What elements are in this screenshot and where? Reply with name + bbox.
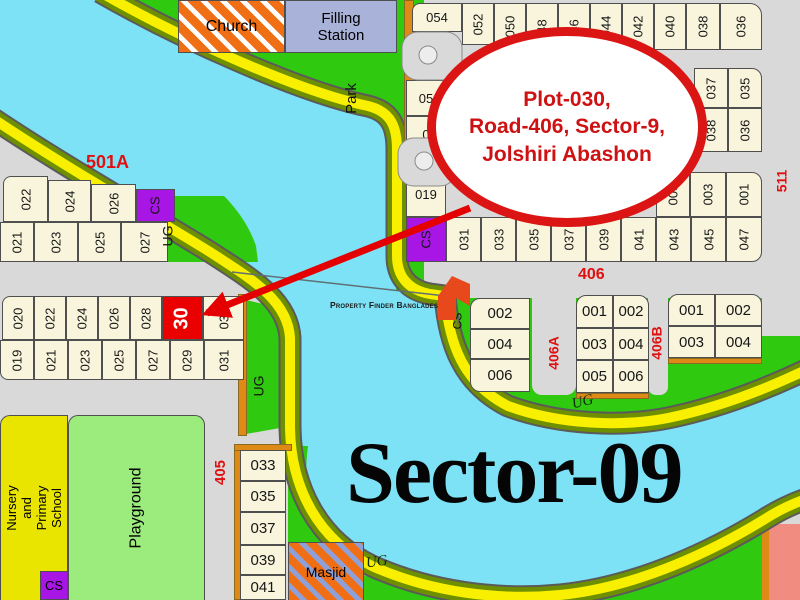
callout-line-2: Road-406, Sector-9, [469,113,665,140]
callout-line-1: Plot-030, [523,86,611,113]
road-label-406: 406 [578,266,605,284]
callout-line-3: Jolshiri Abashon [482,141,652,168]
road-label-511: 511 [764,148,798,214]
road-label-406b: 406B [638,308,676,378]
plot-map-canvas: 0540520504846044042040038036 05003703503… [0,0,800,600]
sector-title: Sector-09 [346,430,681,518]
ug-label-mid-left: UG [242,358,274,414]
ug-label-upper-left: UG [152,208,182,264]
callout-ellipse: Plot-030, Road-406, Sector-9, Jolshiri A… [427,27,707,227]
road-label-501a: 501A [86,152,129,173]
road-label-406a: 406A [534,318,574,388]
nursery-cs-label: CS [45,578,63,593]
road-label-405: 405 [206,440,236,504]
nursery-cs-cell: CS [40,571,68,600]
watermark-text: Property Finder Bangladesh [330,300,452,310]
park-label: Park [336,68,366,128]
ug-label-masjid: UG [365,553,389,573]
